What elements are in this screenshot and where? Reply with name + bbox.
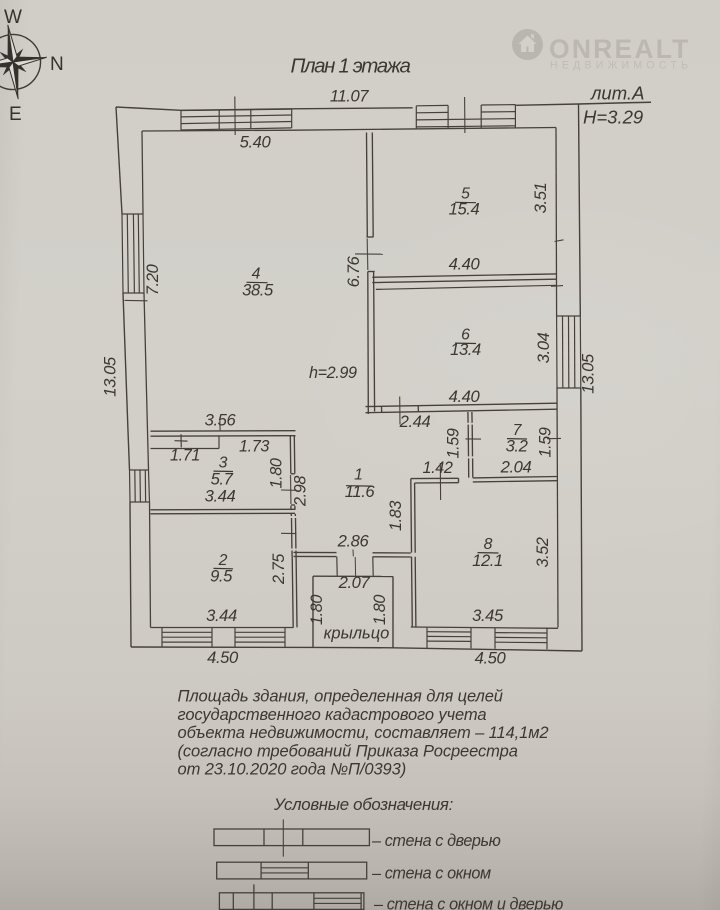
svg-text:5.40: 5.40 (240, 133, 272, 152)
svg-text:2.98: 2.98 (292, 476, 310, 507)
svg-text:Площадь здания, определенная д: Площадь здания, определенная для целей (178, 688, 503, 706)
svg-text:3.44: 3.44 (206, 606, 237, 625)
svg-text:3.44: 3.44 (205, 487, 236, 506)
svg-text:крыльцо: крыльцо (324, 625, 390, 643)
svg-text:1.83: 1.83 (387, 501, 405, 531)
svg-text:2.04: 2.04 (500, 458, 532, 477)
svg-text:– стена с окном и дверью: – стена с окном и дверью (373, 896, 563, 910)
svg-text:государственного кадастрового: государственного кадастрового учета (178, 706, 487, 724)
svg-text:3.45: 3.45 (472, 606, 504, 625)
svg-text:13.4: 13.4 (450, 340, 481, 359)
svg-text:9.5: 9.5 (210, 567, 233, 586)
svg-text:W: W (4, 7, 22, 28)
svg-text:13.05: 13.05 (101, 356, 120, 397)
svg-text:3.2: 3.2 (506, 437, 528, 456)
svg-text:1.42: 1.42 (423, 459, 453, 477)
svg-text:1.71: 1.71 (170, 447, 200, 465)
svg-text:2.44: 2.44 (399, 412, 431, 431)
svg-text:N: N (50, 54, 64, 75)
svg-text:h=2.99: h=2.99 (309, 364, 357, 382)
svg-text:7.20: 7.20 (143, 263, 162, 295)
svg-text:План 1 этажа: План 1 этажа (291, 55, 411, 78)
svg-text:11.07: 11.07 (330, 87, 369, 106)
svg-text:1.59: 1.59 (537, 427, 555, 457)
svg-text:1: 1 (354, 467, 363, 484)
svg-text:4.50: 4.50 (475, 649, 507, 668)
svg-text:15.4: 15.4 (449, 200, 480, 219)
svg-text:3.56: 3.56 (205, 411, 237, 430)
svg-text:Условные обозначения:: Условные обозначения: (273, 795, 453, 814)
svg-text:4.50: 4.50 (207, 648, 239, 667)
svg-text:4.40: 4.40 (449, 387, 481, 406)
svg-text:3.52: 3.52 (534, 537, 552, 567)
svg-text:1.80: 1.80 (371, 595, 389, 625)
svg-text:2.75: 2.75 (270, 553, 288, 585)
svg-text:4.40: 4.40 (449, 255, 481, 274)
svg-text:– стена с дверью: – стена с дверью (371, 832, 501, 850)
svg-text:1.80: 1.80 (308, 595, 326, 625)
svg-text:объекта недвижимости, составля: объекта недвижимости, составляет – 114,1… (178, 724, 549, 742)
svg-text:1.73: 1.73 (239, 438, 269, 456)
svg-text:12.1: 12.1 (472, 551, 503, 570)
svg-text:E: E (9, 104, 22, 125)
svg-text:1.80: 1.80 (268, 458, 286, 488)
svg-text:13.05: 13.05 (579, 353, 598, 394)
svg-text:3.04: 3.04 (534, 332, 553, 363)
svg-text:(согласно требований Приказа Р: (согласно требований Приказа Росреестра (178, 742, 518, 760)
svg-text:НЕДВИЖИМОСТЬ: НЕДВИЖИМОСТЬ (550, 60, 692, 72)
svg-text:H=3.29: H=3.29 (583, 107, 643, 128)
svg-text:38.5: 38.5 (242, 281, 274, 300)
svg-text:6.76: 6.76 (344, 255, 363, 287)
svg-text:– стена с окном: – стена с окном (371, 865, 491, 883)
svg-text:лит.А: лит.А (590, 83, 644, 104)
svg-text:от 23.10.2020 года №П/0393): от 23.10.2020 года №П/0393) (178, 761, 407, 779)
svg-text:3.51: 3.51 (531, 183, 550, 214)
svg-text:11.6: 11.6 (345, 482, 376, 501)
svg-text:2.86: 2.86 (337, 532, 370, 551)
svg-text:1.59: 1.59 (445, 428, 463, 458)
svg-text:2.07: 2.07 (338, 573, 371, 592)
